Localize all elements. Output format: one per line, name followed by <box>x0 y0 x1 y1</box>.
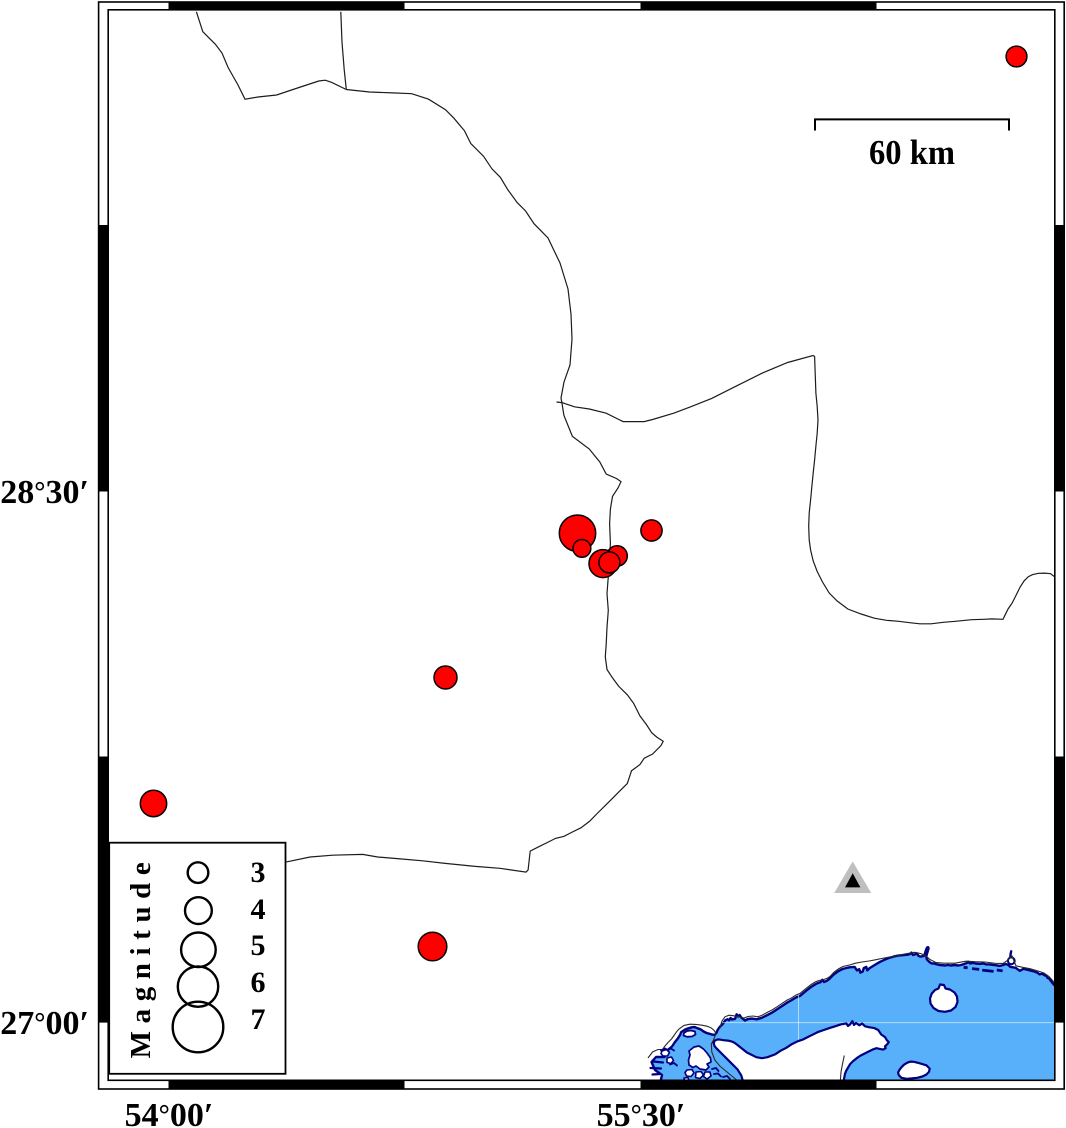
svg-text:60 km: 60 km <box>869 133 955 172</box>
svg-text:5: 5 <box>251 929 266 962</box>
svg-text:3: 3 <box>251 856 266 889</box>
svg-text:28°30′: 28°30′ <box>0 474 89 511</box>
svg-text:7: 7 <box>251 1003 266 1036</box>
svg-text:6: 6 <box>251 966 266 999</box>
svg-text:54°00′: 54°00′ <box>125 1097 214 1128</box>
svg-text:55°30′: 55°30′ <box>597 1097 686 1128</box>
svg-text:27°00′: 27°00′ <box>0 1005 89 1042</box>
svg-text:Magnitude: Magnitude <box>125 855 157 1059</box>
svg-text:4: 4 <box>251 893 266 926</box>
